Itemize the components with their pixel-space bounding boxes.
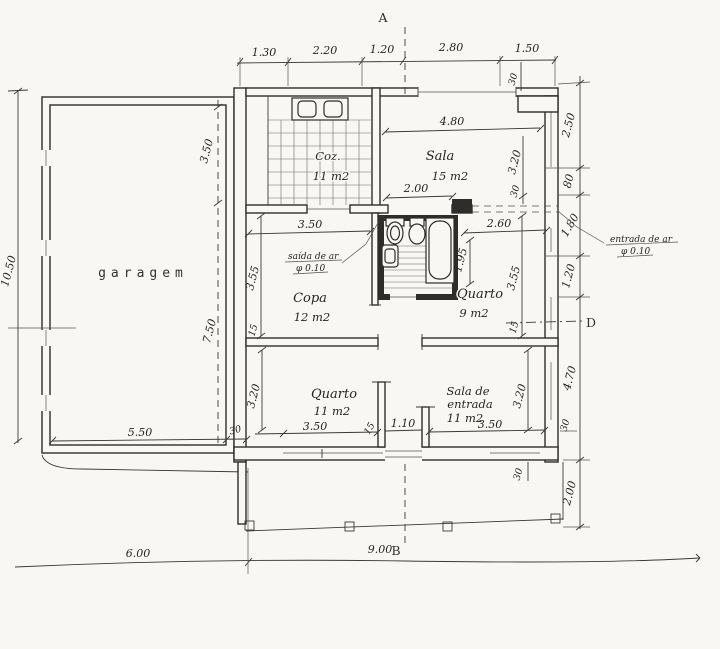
toilet-icon	[386, 218, 404, 244]
dim-label: 3.55	[504, 265, 523, 292]
dim-label: 2.50	[559, 112, 578, 140]
dim-label: 5.50	[128, 426, 153, 439]
room-area-quarto11: 11 m2	[314, 404, 351, 418]
dim-label: 80	[561, 173, 577, 190]
room-area-copa: 12 m2	[294, 310, 331, 324]
dim-label: 30	[509, 184, 523, 199]
house-walls	[234, 87, 558, 524]
dim-label: 30	[507, 72, 521, 87]
room-label-copa: Copa	[293, 291, 327, 306]
dim-label: 4.80	[439, 115, 465, 128]
section-marker-d: D	[586, 315, 596, 330]
dim-label: 3.50	[298, 218, 323, 231]
dim-label: 10.50	[0, 254, 19, 288]
bidet-icon	[382, 245, 398, 267]
dim-left: 10.50	[0, 88, 28, 444]
dim-bottom: 6.00 9.00	[15, 468, 700, 574]
porch-columns	[245, 514, 560, 531]
dim-label: 1.20	[559, 263, 578, 290]
section-marker-b: B	[391, 543, 400, 558]
washbasin-icon	[409, 218, 425, 244]
bathtub-icon	[426, 218, 454, 283]
room-label-sala-entrada-2: entrada	[447, 397, 493, 411]
room-label-quarto9: Quarto	[457, 287, 503, 302]
dim-label: 1.20	[370, 43, 395, 56]
dim-label: 1.30	[252, 46, 277, 59]
kitchen-sink-icon	[292, 98, 348, 120]
dim-label: 1.80	[558, 211, 582, 239]
floor-plan-canvas: garagem	[0, 0, 720, 649]
dim-label: 4.70	[560, 365, 579, 393]
dim-label: 2.80	[438, 41, 464, 54]
dim-interior: 4.80 3.20 30 2.00 3.50 3.55 15 2.60 1.95…	[243, 115, 550, 482]
room-label-garagem: garagem	[98, 266, 188, 281]
section-marker-a: A	[377, 10, 388, 25]
dim-label: 2.00	[403, 182, 429, 195]
dim-label: 3.20	[505, 149, 524, 176]
dim-label: 9.00	[368, 543, 393, 556]
room-label-sala: Sala	[426, 149, 455, 164]
dim-label: 2.60	[486, 217, 512, 230]
dim-label: 3.20	[510, 383, 529, 410]
dim-label: 6.00	[126, 547, 151, 560]
bathroom	[378, 215, 458, 300]
room-label-coz: Coz.	[315, 149, 340, 163]
dim-label: 2.20	[312, 44, 338, 57]
entrance-door-opening	[385, 446, 422, 461]
dim-top: 1.30 2.20 1.20 2.80 1.50 30	[237, 41, 558, 91]
dim-label: 1.10	[391, 417, 416, 430]
curb-line	[42, 455, 248, 472]
room-area-sala: 15 m2	[432, 169, 469, 183]
dim-label: 1.50	[515, 42, 540, 55]
dim-label: 15	[247, 323, 261, 338]
dim-label: 3.20	[244, 383, 263, 410]
room-area-quarto9: 9 m2	[459, 306, 488, 320]
room-area-coz: 11 m2	[313, 169, 350, 183]
window-icon	[418, 87, 516, 97]
room-label-quarto11: Quarto	[311, 387, 357, 402]
dim-label: 3.50	[478, 418, 503, 431]
dim-label: 3.50	[303, 420, 328, 433]
corner-pier	[518, 96, 558, 112]
dim-label: 30	[559, 418, 573, 433]
floor-plan-drawing: garagem	[0, 0, 720, 649]
room-label-sala-entrada-1: Sala de	[446, 384, 489, 398]
dim-label: 30	[512, 467, 526, 482]
dim-label: 15	[508, 320, 522, 335]
